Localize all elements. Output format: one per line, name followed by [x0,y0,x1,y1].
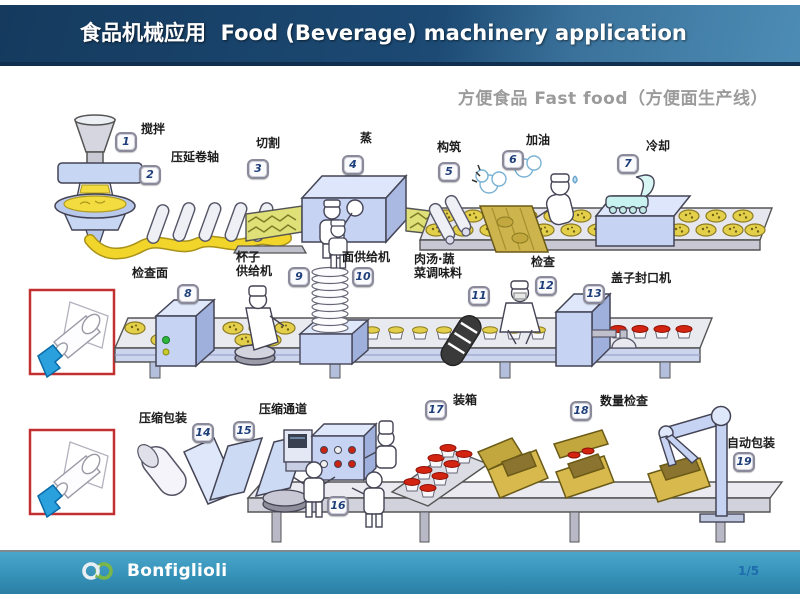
brand-logo: Bonfiglioli [80,560,227,582]
station-2-badge: 2 [139,165,161,185]
station-13-label: 盖子封口机 [611,271,671,285]
floor-stool [263,490,307,512]
station-14-label: 压缩包装 [139,411,187,425]
station-4-badge: 4 [342,155,364,175]
station-7-badge: 7 [617,154,639,174]
bonfiglioli-rings-icon [80,560,120,582]
production-line-diagram: 1 2 3 4 5 6 7 8 9 10 11 12 13 14 15 16 1… [0,0,800,600]
control-station [284,424,376,480]
station-9-label: 杯子 供给机 [236,250,272,279]
station-12-label: 检查 [531,255,555,269]
station-14-badge: 14 [192,423,214,443]
infeed-tower [156,300,214,366]
station-7-label: 冷却 [646,139,670,153]
gearmotor-callout-2 [30,430,114,517]
station-18-badge: 18 [570,401,592,421]
station-6-label: 加油 [526,133,550,147]
page-number: 1/5 [738,564,759,578]
gearmotor-callout-1 [30,290,114,377]
station-15-label: 压缩通道 [259,402,307,416]
station-3-badge: 3 [247,159,269,179]
station-10-label: 面供给机 [342,250,390,264]
station-11-label: 肉汤·蔬 菜调味料 [414,252,462,281]
station-15-badge: 15 [233,421,255,441]
brand-name: Bonfiglioli [127,561,227,581]
station-19-label: 自动包装 [727,436,775,450]
station-6-badge: 6 [502,150,524,170]
station-8-badge: 8 [177,284,199,304]
station-17-badge: 17 [425,400,447,420]
station-3-label: 切割 [256,136,280,150]
station-1-badge: 1 [115,132,137,152]
station-16-badge: 16 [327,496,349,516]
station-5-label: 构筑 [437,140,461,154]
station-18-label: 数量检查 [600,394,648,408]
station-11-badge: 11 [468,286,490,306]
station-2-label: 压延卷轴 [171,150,219,164]
station-8-label: 检查面 [132,266,168,280]
station-9-badge: 9 [288,267,310,287]
station-4-label: 蒸 [360,131,372,145]
station-12-badge: 12 [535,276,557,296]
wavy-noodle-belt-left [246,206,302,241]
station-10-badge: 10 [352,267,374,287]
station-13-badge: 13 [583,284,605,304]
station-17-label: 装箱 [453,393,477,407]
station-1-label: 搅拌 [141,122,165,136]
station-19-badge: 19 [733,452,755,472]
production-line-illustration [0,0,800,600]
station-5-badge: 5 [438,162,460,182]
